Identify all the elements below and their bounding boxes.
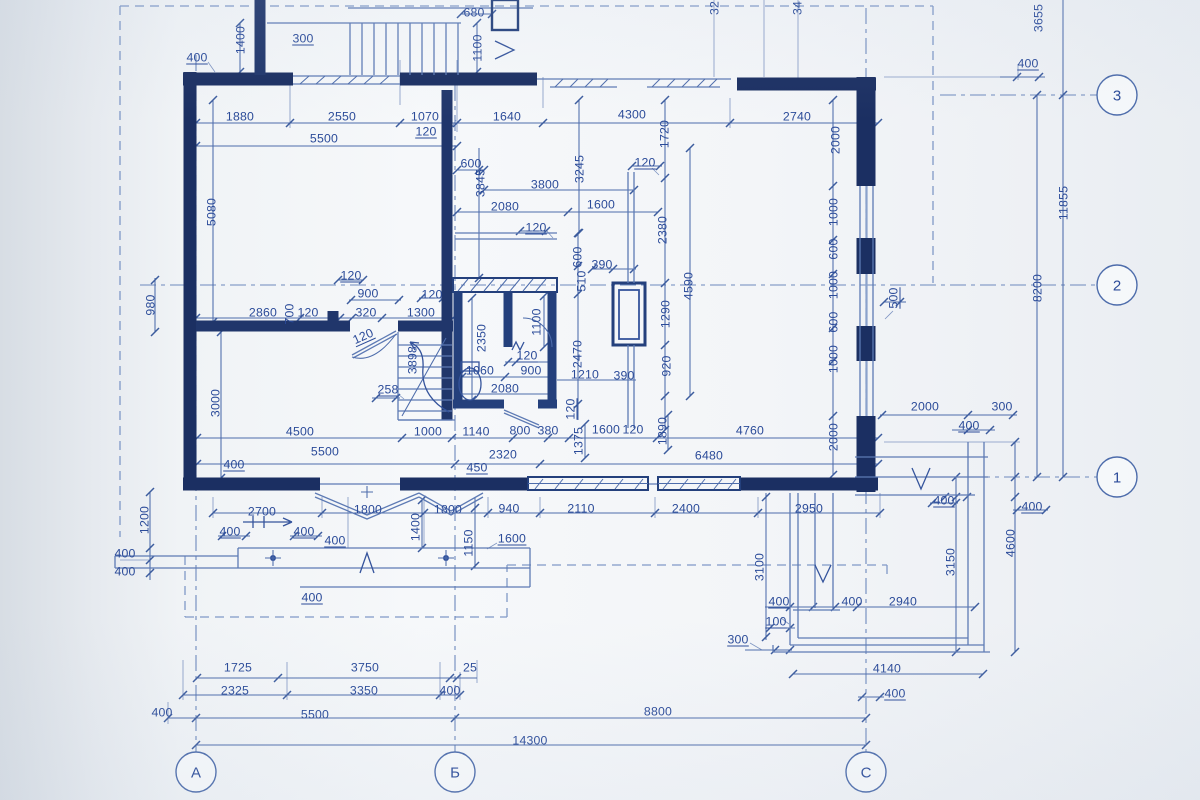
svg-text:2325: 2325 (221, 683, 249, 697)
dim-label: 600 (826, 238, 840, 259)
svg-text:400: 400 (301, 590, 322, 604)
svg-text:8800: 8800 (644, 704, 672, 718)
walls (183, 0, 878, 492)
dim-label: 2940 (889, 594, 917, 608)
svg-text:3: 3 (1113, 87, 1121, 104)
svg-text:940: 940 (498, 501, 519, 515)
dim-label: 300 (991, 399, 1012, 413)
dim-label: 1000 (826, 271, 840, 299)
svg-text:3000: 3000 (208, 389, 222, 417)
dim-label: 600 (826, 311, 840, 332)
dim-label: 2320 (489, 447, 517, 461)
dim-label: 2350 (474, 324, 488, 352)
axis-circle-А: А (176, 752, 216, 792)
svg-text:1800: 1800 (354, 502, 382, 516)
dim-label: 3845 (473, 169, 487, 197)
dim-label: 400 (933, 493, 955, 507)
dim-label: 940 (498, 501, 519, 515)
svg-text:3655: 3655 (1031, 4, 1045, 32)
dim-label: 120 (563, 398, 577, 420)
svg-text:400: 400 (439, 683, 460, 697)
dim-label: 120 (340, 268, 362, 282)
dim-label: 3655 (1031, 4, 1045, 32)
dim-label: 3800 (531, 177, 559, 191)
dim-label: 320 (355, 305, 376, 319)
svg-text:2550: 2550 (328, 109, 356, 123)
svg-text:1: 1 (1113, 469, 1121, 486)
dim-label: 1100 (529, 308, 543, 335)
dim-label: 1000 (826, 345, 840, 373)
svg-text:400: 400 (1021, 499, 1042, 513)
svg-text:980: 980 (143, 294, 157, 315)
dim-label: 3898 (405, 346, 419, 374)
dim-label: 390 (613, 368, 634, 382)
svg-text:400: 400 (114, 564, 135, 578)
svg-text:11855: 11855 (1056, 186, 1070, 220)
svg-text:400: 400 (114, 546, 135, 560)
svg-text:400: 400 (186, 50, 207, 64)
dim-label: 400 (884, 686, 906, 700)
dim-label: 380 (537, 423, 558, 437)
svg-text:4590: 4590 (681, 272, 695, 300)
dim-label: 800 (509, 423, 530, 437)
dim-label: 11855 (1056, 186, 1070, 220)
svg-text:1100: 1100 (529, 308, 543, 335)
svg-text:400: 400 (219, 524, 240, 538)
dim-label: 400 (1021, 499, 1043, 513)
dim-label: 3750 (351, 660, 379, 674)
svg-text:1100: 1100 (470, 34, 484, 61)
svg-text:120: 120 (525, 220, 546, 234)
dim-label: 14300 (512, 733, 547, 747)
svg-text:2860: 2860 (249, 305, 277, 319)
dim-label: 900 (357, 286, 378, 300)
dim-label: 3000 (208, 389, 222, 417)
svg-text:400: 400 (293, 524, 314, 538)
roof-overhang-dashed (120, 6, 933, 617)
dim-label: 1880 (226, 109, 254, 123)
dimension-lines (146, 0, 1067, 749)
dim-label: 1600 (592, 422, 620, 436)
dim-label: 1150 (461, 529, 475, 556)
svg-text:600: 600 (570, 246, 584, 267)
svg-text:4500: 4500 (286, 424, 314, 438)
dim-label: 1300 (407, 305, 435, 319)
svg-text:4760: 4760 (736, 423, 764, 437)
dim-label: 2380 (655, 216, 669, 244)
dim-label: 400 (223, 457, 245, 471)
dim-label: 300 (727, 632, 749, 646)
svg-text:400: 400 (958, 418, 979, 432)
svg-text:1640: 1640 (493, 109, 521, 123)
svg-text:450: 450 (466, 460, 487, 474)
dim-label: 2325 (221, 683, 249, 697)
dim-label: 450 (466, 460, 488, 474)
svg-text:120: 120 (563, 398, 577, 419)
axis-circle-2: 2 (1097, 265, 1137, 305)
svg-text:5080: 5080 (204, 198, 218, 226)
svg-text:300: 300 (991, 399, 1012, 413)
svg-text:2950: 2950 (795, 501, 823, 515)
dim-label: 1100 (470, 34, 484, 61)
dim-label: 120 (415, 124, 437, 138)
dim-label: 400 (841, 594, 862, 608)
dim-label: 500 (886, 287, 900, 309)
dim-label: 8800 (644, 704, 672, 718)
svg-text:600: 600 (826, 238, 840, 259)
svg-text:2320: 2320 (489, 447, 517, 461)
svg-text:1200: 1200 (137, 506, 151, 534)
dim-label: 1600 (587, 197, 615, 211)
svg-text:1000: 1000 (826, 345, 840, 373)
dimension-labels: 6801100400140030032343655400118558200500… (114, 1, 1070, 747)
dim-label: 400 (151, 705, 172, 719)
dim-label: 600 (570, 246, 584, 267)
dim-label: 120 (622, 422, 643, 436)
dim-label: 4140 (873, 661, 901, 675)
dim-label: 100 (765, 614, 787, 628)
svg-text:2940: 2940 (889, 594, 917, 608)
svg-text:1880: 1880 (226, 109, 254, 123)
svg-text:2000: 2000 (911, 399, 939, 413)
dim-label: 32 (707, 1, 721, 15)
dim-label: 400 (114, 564, 135, 578)
dim-label: 4300 (618, 107, 646, 121)
svg-text:1300: 1300 (407, 305, 435, 319)
svg-text:510: 510 (574, 270, 588, 291)
dim-label: 3150 (943, 548, 957, 576)
dim-label: 300 (292, 31, 314, 45)
svg-text:32: 32 (707, 1, 721, 15)
dim-label: 400 (1017, 56, 1039, 70)
svg-text:500: 500 (886, 287, 900, 308)
svg-text:800: 800 (509, 423, 530, 437)
svg-text:5500: 5500 (301, 707, 329, 721)
dim-label: 2950 (795, 501, 823, 515)
dim-label: 980 (143, 294, 157, 315)
dim-label: 400 (301, 590, 323, 604)
svg-text:300: 300 (727, 632, 748, 646)
dim-label: 1720 (657, 120, 671, 148)
axis-circle-1: 1 (1097, 457, 1137, 497)
svg-text:400: 400 (151, 705, 172, 719)
svg-text:380: 380 (537, 423, 558, 437)
dim-label: 1000 (414, 424, 442, 438)
svg-text:2000: 2000 (828, 126, 842, 154)
svg-text:680: 680 (463, 5, 484, 19)
dim-label: 2470 (570, 340, 584, 368)
svg-text:3750: 3750 (351, 660, 379, 674)
dim-label: 400 (768, 594, 790, 608)
dim-label: 2110 (567, 501, 594, 515)
svg-text:258: 258 (377, 382, 398, 396)
svg-text:2: 2 (1113, 277, 1121, 294)
svg-text:1600: 1600 (498, 531, 526, 545)
svg-text:1290: 1290 (658, 300, 672, 328)
dim-label: 1140 (462, 424, 489, 438)
svg-text:14300: 14300 (512, 733, 547, 747)
svg-text:1140: 1140 (462, 424, 489, 438)
dim-label: 3245 (572, 155, 586, 183)
svg-text:1400: 1400 (233, 26, 247, 54)
svg-text:900: 900 (520, 363, 541, 377)
svg-text:320: 320 (355, 305, 376, 319)
svg-text:5500: 5500 (310, 131, 338, 145)
dim-label: 700 (282, 303, 296, 324)
axis-circle-Б: Б (435, 752, 475, 792)
dim-label: 1400 (233, 26, 247, 54)
dim-label: 1210 (571, 367, 599, 381)
dim-label: 2740 (783, 109, 811, 123)
svg-text:1070: 1070 (411, 109, 439, 123)
svg-text:2740: 2740 (783, 109, 811, 123)
svg-text:700: 700 (282, 303, 296, 324)
dim-label: 25 (463, 660, 477, 674)
dim-label: 3100 (752, 553, 766, 581)
dim-label: 1890 (655, 417, 669, 445)
dim-label: 120 (634, 155, 656, 169)
blueprint-photo: 6801100400140030032343655400118558200500… (0, 0, 1200, 800)
svg-text:1890: 1890 (655, 417, 669, 445)
svg-text:400: 400 (884, 686, 905, 700)
svg-text:400: 400 (324, 533, 345, 547)
dim-label: 600 (460, 156, 481, 170)
dim-label: 120 (421, 287, 442, 301)
dim-label: 34 (790, 1, 804, 15)
svg-text:3800: 3800 (531, 177, 559, 191)
dim-label: 1640 (493, 109, 521, 123)
svg-text:1600: 1600 (592, 422, 620, 436)
svg-text:2080: 2080 (491, 381, 519, 395)
svg-text:1150: 1150 (461, 529, 475, 556)
svg-text:400: 400 (1017, 56, 1038, 70)
dim-label: 1800 (354, 502, 382, 516)
dim-label: 2860 (249, 305, 277, 319)
svg-text:3898: 3898 (405, 346, 419, 374)
svg-text:25: 25 (463, 660, 477, 674)
svg-text:600: 600 (460, 156, 481, 170)
svg-text:600: 600 (826, 311, 840, 332)
svg-text:1000: 1000 (414, 424, 442, 438)
svg-text:3245: 3245 (572, 155, 586, 183)
svg-text:А: А (191, 764, 201, 781)
axis-circle-С: С (846, 752, 886, 792)
svg-text:1600: 1600 (587, 197, 615, 211)
svg-text:400: 400 (933, 493, 954, 507)
svg-text:34: 34 (790, 1, 804, 15)
svg-text:120: 120 (421, 287, 442, 301)
dim-label: 3350 (350, 683, 378, 697)
svg-text:2470: 2470 (570, 340, 584, 368)
svg-text:390: 390 (591, 257, 612, 271)
svg-text:2110: 2110 (567, 501, 594, 515)
svg-text:1400: 1400 (408, 513, 422, 541)
dim-label: 400 (439, 683, 460, 697)
dim-label: 120 (525, 220, 547, 234)
svg-text:2380: 2380 (655, 216, 669, 244)
svg-text:3350: 3350 (350, 683, 378, 697)
svg-text:2350: 2350 (474, 324, 488, 352)
dim-label: 1600 (498, 531, 527, 545)
svg-text:1000: 1000 (826, 271, 840, 299)
dim-label: 258 (377, 382, 399, 396)
floor-plan-canvas: 6801100400140030032343655400118558200500… (0, 0, 1200, 800)
dim-label: 390 (591, 257, 612, 271)
axis-circle-3: 3 (1097, 75, 1137, 115)
svg-text:120: 120 (340, 268, 361, 282)
dim-label: 120 (297, 305, 318, 319)
dim-label: 5080 (204, 198, 218, 226)
svg-text:8200: 8200 (1030, 274, 1044, 302)
dim-label: 6480 (695, 448, 723, 462)
svg-text:1375: 1375 (571, 427, 585, 455)
svg-text:5500: 5500 (311, 444, 339, 458)
dim-label: 2080 (491, 199, 519, 213)
svg-text:С: С (861, 764, 872, 781)
dim-label: 2000 (911, 399, 939, 413)
svg-text:120: 120 (516, 348, 537, 362)
svg-text:Б: Б (450, 764, 460, 781)
svg-text:300: 300 (292, 31, 313, 45)
dim-label: 5500 (310, 131, 338, 145)
svg-text:900: 900 (357, 286, 378, 300)
svg-text:120: 120 (622, 422, 643, 436)
dim-label: 400 (186, 50, 208, 64)
dim-label: 400 (219, 524, 241, 538)
svg-text:400: 400 (768, 594, 789, 608)
svg-text:120: 120 (634, 155, 655, 169)
ventilation-shaft (613, 172, 645, 428)
dim-label: 900 (520, 363, 541, 377)
dim-label: 1290 (658, 300, 672, 328)
svg-text:1060: 1060 (466, 363, 494, 377)
dim-label: 8200 (1030, 274, 1044, 302)
dim-label: 920 (659, 355, 673, 376)
svg-text:400: 400 (223, 457, 244, 471)
svg-text:1800: 1800 (434, 502, 462, 516)
svg-text:4600: 4600 (1003, 529, 1017, 557)
dim-label: 400 (293, 524, 315, 538)
svg-text:120: 120 (415, 124, 436, 138)
svg-text:920: 920 (659, 355, 673, 376)
dim-label: 5500 (311, 444, 339, 458)
dim-label: 1800 (434, 502, 462, 516)
svg-text:2080: 2080 (491, 199, 519, 213)
dim-label: 5500 (301, 707, 329, 721)
dim-label: 4590 (681, 272, 695, 300)
dim-label: 1400 (408, 513, 422, 541)
dim-label: 1000 (826, 198, 840, 226)
svg-text:6480: 6480 (695, 448, 723, 462)
terrace (773, 442, 990, 652)
dim-label: 2400 (672, 501, 700, 515)
dim-label: 2000 (828, 126, 842, 154)
dim-label: 4600 (1003, 529, 1017, 557)
svg-text:400: 400 (841, 594, 862, 608)
svg-text:1000: 1000 (826, 198, 840, 226)
svg-text:2700: 2700 (248, 504, 276, 518)
dim-label: 1200 (137, 506, 151, 534)
dim-label: 4500 (286, 424, 314, 438)
dim-label: 4760 (736, 423, 764, 437)
dim-label: 1375 (571, 427, 585, 455)
dim-label: 400 (324, 533, 346, 547)
dim-label: 1725 (224, 660, 252, 674)
svg-text:1210: 1210 (571, 367, 599, 381)
svg-text:390: 390 (613, 368, 634, 382)
svg-text:3845: 3845 (473, 169, 487, 197)
svg-text:4140: 4140 (873, 661, 901, 675)
svg-text:100: 100 (765, 614, 786, 628)
svg-text:1720: 1720 (657, 120, 671, 148)
dim-label: 400 (958, 418, 980, 432)
dim-label: 2700 (248, 504, 276, 518)
dim-label: 2080 (491, 381, 519, 395)
svg-text:2000: 2000 (826, 423, 840, 451)
dim-label: 510 (574, 270, 588, 291)
svg-text:1725: 1725 (224, 660, 252, 674)
svg-text:120: 120 (297, 305, 318, 319)
svg-text:3100: 3100 (752, 553, 766, 581)
dim-label: 120 (516, 348, 538, 362)
dim-label: 1070 (411, 109, 439, 123)
dim-label: 1060 (466, 363, 494, 377)
svg-text:3150: 3150 (943, 548, 957, 576)
dim-label: 680 (463, 5, 484, 19)
dim-label: 2000 (826, 423, 840, 451)
dim-label: 400 (114, 546, 135, 560)
svg-text:2400: 2400 (672, 501, 700, 515)
svg-text:4300: 4300 (618, 107, 646, 121)
dim-label: 2550 (328, 109, 356, 123)
